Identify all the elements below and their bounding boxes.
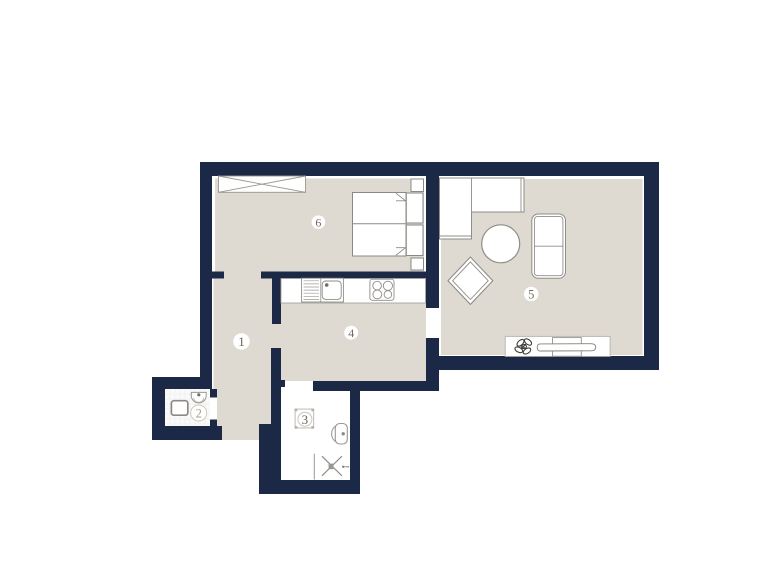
svg-text:2: 2 <box>196 406 202 420</box>
svg-text:4: 4 <box>348 326 354 340</box>
svg-text:6: 6 <box>315 215 321 229</box>
svg-text:1: 1 <box>238 334 245 349</box>
svg-text:5: 5 <box>528 287 534 301</box>
svg-text:3: 3 <box>302 412 309 427</box>
